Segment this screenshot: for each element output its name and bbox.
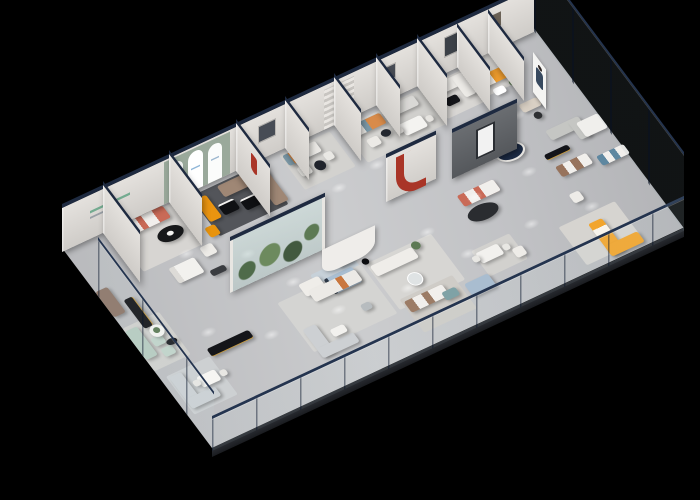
white-armchair-right-2 xyxy=(568,190,584,203)
arch-window xyxy=(208,140,222,184)
standee-person-body xyxy=(536,66,543,91)
showroom-isometric-render xyxy=(0,0,700,500)
red-emblem xyxy=(252,152,258,177)
spotlight xyxy=(198,325,218,340)
mattress-display xyxy=(168,257,205,284)
spotlight xyxy=(519,164,539,179)
spotlight xyxy=(329,181,349,196)
dark-bench xyxy=(209,264,228,276)
framed-panel xyxy=(476,121,495,160)
brown-sofa-right xyxy=(555,153,594,178)
tv-niche xyxy=(258,118,276,143)
spotlight xyxy=(521,217,541,232)
black-console-right xyxy=(544,144,572,161)
office-chair xyxy=(532,110,544,120)
white-armchair xyxy=(199,242,218,257)
spotlight xyxy=(261,327,281,342)
